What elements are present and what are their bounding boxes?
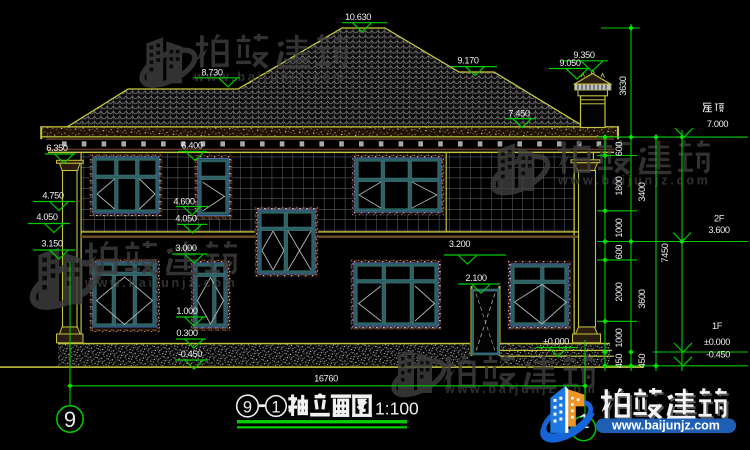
svg-text:4.600: 4.600 bbox=[173, 197, 194, 207]
svg-text:1: 1 bbox=[271, 399, 280, 417]
svg-text:7.450: 7.450 bbox=[508, 109, 529, 119]
svg-text:1000: 1000 bbox=[614, 328, 624, 347]
svg-text:1000: 1000 bbox=[614, 218, 624, 237]
svg-text:9.170: 9.170 bbox=[457, 56, 478, 66]
svg-text:16760: 16760 bbox=[314, 374, 338, 384]
svg-text:1.000: 1.000 bbox=[176, 306, 197, 316]
svg-text:2.100: 2.100 bbox=[465, 273, 486, 283]
svg-text:2000: 2000 bbox=[614, 282, 624, 301]
svg-text:6.400: 6.400 bbox=[181, 141, 202, 151]
svg-text:9.050: 9.050 bbox=[559, 58, 580, 68]
svg-text:www.baijunjz.com: www.baijunjz.com bbox=[557, 174, 711, 188]
svg-text:3630: 3630 bbox=[618, 76, 628, 95]
svg-text:-0.450: -0.450 bbox=[706, 350, 730, 360]
svg-text:0.300: 0.300 bbox=[176, 328, 197, 338]
svg-text:3.150: 3.150 bbox=[41, 239, 62, 249]
svg-text:450: 450 bbox=[614, 354, 624, 369]
svg-text:9: 9 bbox=[243, 399, 252, 417]
svg-text:8.730: 8.730 bbox=[201, 68, 222, 78]
svg-text:4.050: 4.050 bbox=[36, 212, 57, 222]
svg-text:4.750: 4.750 bbox=[42, 191, 63, 201]
svg-text:1:100: 1:100 bbox=[375, 399, 419, 419]
svg-text:3600: 3600 bbox=[637, 289, 647, 308]
svg-text:1800: 1800 bbox=[614, 176, 624, 195]
svg-text:www.baijunjz.com: www.baijunjz.com bbox=[611, 419, 720, 433]
svg-text:2F: 2F bbox=[714, 214, 725, 224]
svg-text:3.000: 3.000 bbox=[175, 243, 196, 253]
svg-text:±0.000: ±0.000 bbox=[704, 337, 730, 347]
svg-text:4.050: 4.050 bbox=[175, 214, 196, 224]
svg-text:7450: 7450 bbox=[660, 243, 670, 262]
svg-text:6.350: 6.350 bbox=[46, 143, 67, 153]
svg-text:www.baijunjz.com: www.baijunjz.com bbox=[84, 276, 238, 290]
svg-text:600: 600 bbox=[614, 245, 624, 260]
svg-text:-0.450: -0.450 bbox=[178, 349, 202, 359]
svg-text:1F: 1F bbox=[712, 321, 723, 331]
svg-text:9: 9 bbox=[64, 407, 76, 432]
svg-text:3400: 3400 bbox=[637, 182, 647, 201]
svg-text:450: 450 bbox=[637, 354, 647, 369]
svg-text:±0.000: ±0.000 bbox=[543, 337, 569, 347]
svg-text:10.630: 10.630 bbox=[345, 12, 371, 22]
svg-text:600: 600 bbox=[614, 142, 624, 157]
svg-text:3.200: 3.200 bbox=[449, 239, 470, 249]
svg-text:3.600: 3.600 bbox=[708, 225, 729, 235]
svg-text:7.000: 7.000 bbox=[707, 119, 728, 129]
